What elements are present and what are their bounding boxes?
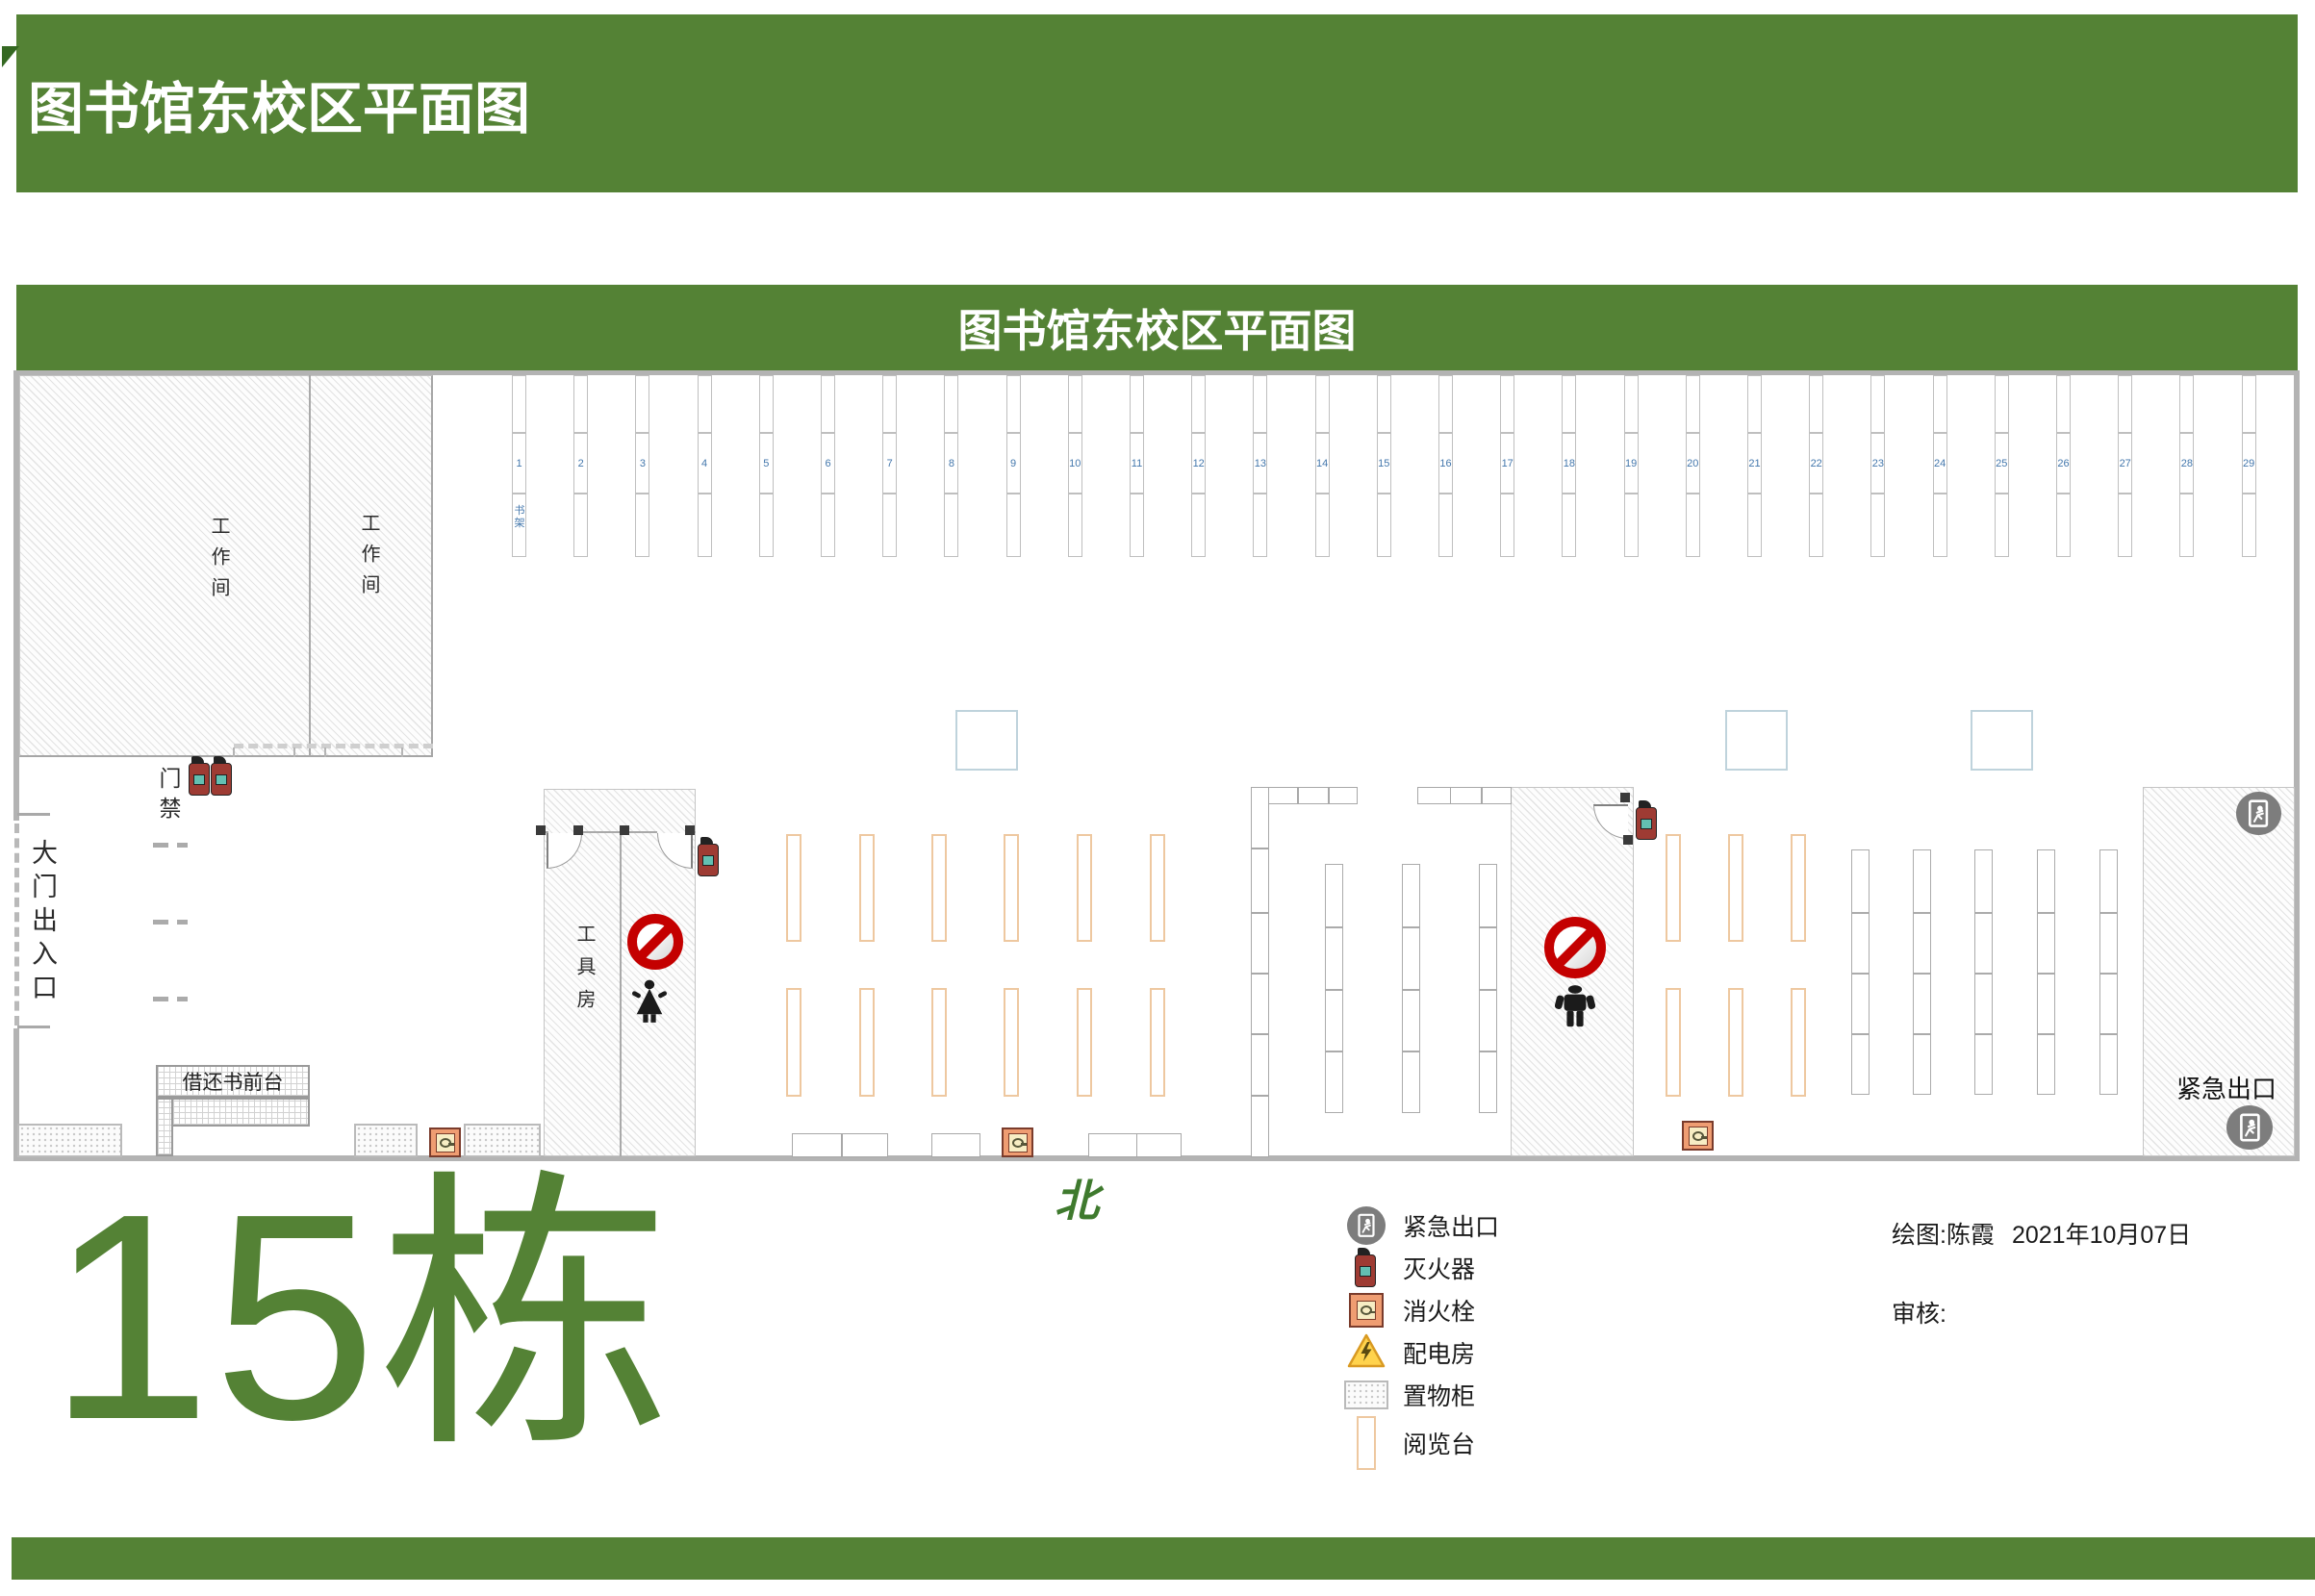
shelf-number: 20 [1687, 458, 1699, 470]
shelf-number-area: 23 [1871, 434, 1884, 494]
gate-dash [177, 843, 188, 848]
storage-cabinet [1417, 787, 1512, 804]
bookshelf: 20 [1686, 375, 1700, 557]
desk-divider [1975, 912, 1992, 914]
bookshelf: 16 [1438, 375, 1453, 557]
shelf-number-area: 12 [1192, 434, 1205, 494]
storage-cabinet [1265, 787, 1358, 804]
locker-divider [1252, 1033, 1268, 1035]
north-indicator: 北 [1055, 1166, 1099, 1229]
bookshelf: 26 [2056, 375, 2071, 557]
borrow-desk-label: 借还书前台 [183, 1067, 284, 1096]
page: 图书馆东校区平面图 图书馆东校区平面图 工作间 工作间 大门出入口 门禁 工具房… [0, 0, 2315, 1596]
reading-desk [1791, 834, 1806, 942]
segmented-desk-column [1913, 849, 1931, 1095]
reading-desk [1150, 834, 1165, 942]
extinguisher-label-patch [702, 855, 714, 866]
reading-desk [1004, 834, 1019, 942]
shelf-number-area: 8 [945, 434, 957, 494]
reading-desk [859, 834, 875, 942]
legend: 紧急出口灭火器消火栓配电房置物柜阅览台 [1341, 1204, 1499, 1470]
no-entry-slash [638, 925, 673, 959]
shelf-number-area: 28 [2180, 434, 2193, 494]
bookshelf: 24 [1933, 375, 1947, 557]
shelf-number: 10 [1069, 458, 1081, 470]
storage-cabinet [792, 1133, 888, 1157]
hydrant-inner [436, 1133, 455, 1153]
desk-divider [1403, 1051, 1419, 1052]
shelf-number: 2 [574, 458, 587, 470]
borrow-desk-column [156, 1098, 173, 1156]
shelf-number: 28 [2180, 458, 2193, 470]
plan-title-banner: 图书馆东校区平面图 [16, 285, 2298, 370]
reading-desk [1666, 834, 1681, 942]
bottom-green-bar [12, 1537, 2315, 1580]
desk-divider [1914, 1033, 1930, 1035]
bookshelf: 17 [1500, 375, 1514, 557]
locker-divider [1252, 912, 1268, 914]
shelf-number-area: 13 [1254, 434, 1266, 494]
desk-divider [1480, 1051, 1496, 1052]
shelf-number-area: 17 [1501, 434, 1514, 494]
shelf-number: 19 [1625, 458, 1638, 470]
locker-divider [1252, 848, 1268, 849]
shelf-number-area: 2 [574, 434, 587, 494]
door-hinge [1620, 793, 1630, 802]
shelf-number: 17 [1501, 458, 1514, 470]
legend-icon-cell [1341, 1333, 1391, 1373]
reading-desk [1728, 988, 1743, 1097]
bookshelf: 13 [1253, 375, 1267, 557]
bookshelf: 28 [2179, 375, 2194, 557]
tool-room-divider-wall [620, 833, 622, 1156]
shelf-number-area: 5 [760, 434, 773, 494]
credits: 绘图:陈霞 2021年10月07日 审核: [1892, 1216, 2191, 1330]
bookshelf: 11 [1130, 375, 1144, 557]
reading-desk [1791, 988, 1806, 1097]
legend-label: 配电房 [1403, 1335, 1475, 1370]
fire-hydrant-icon [1349, 1293, 1384, 1328]
workroom-2-label: 工作间 [355, 513, 383, 605]
legend-item: 配电房 [1341, 1331, 1499, 1374]
legend-icon-cell [1341, 1206, 1391, 1245]
emergency-exit-icon [1347, 1206, 1386, 1245]
cabinet-divider [841, 1134, 843, 1156]
bookshelf: 2 [573, 375, 588, 557]
legend-icon-cell [1341, 1416, 1391, 1470]
legend-label: 置物柜 [1403, 1378, 1475, 1412]
female-restroom-icon [631, 979, 668, 1028]
desk-divider [1326, 1051, 1342, 1052]
door-hinge [620, 825, 629, 835]
legend-item: 紧急出口 [1341, 1204, 1499, 1247]
shelf-number-area: 6 [822, 434, 834, 494]
review-label: 审核: [1892, 1295, 2191, 1330]
bookshelf: 6 [821, 375, 835, 557]
entrance-label: 大门出入口 [24, 839, 62, 1007]
bookshelf: 22 [1809, 375, 1823, 557]
storage-cabinet [1088, 1133, 1182, 1157]
desk-divider [1852, 1033, 1869, 1035]
shelf-number-area: 19 [1625, 434, 1638, 494]
desk-divider [2038, 1033, 2054, 1035]
wall-tick [401, 747, 403, 757]
drawn-date: 2021年10月07日 [2012, 1216, 2191, 1251]
reading-desk [931, 834, 947, 942]
shelf-number-area: 10 [1069, 434, 1081, 494]
shelf-number: 22 [1810, 458, 1822, 470]
reading-desk [786, 834, 801, 942]
bookshelf: 18 [1562, 375, 1576, 557]
shelf-number: 15 [1378, 458, 1390, 470]
fire-extinguisher-icon [698, 837, 721, 877]
segmented-desk-column [1851, 849, 1870, 1095]
entrance-stub-bottom [17, 1026, 50, 1028]
desk-divider [1480, 926, 1496, 928]
shelf-number: 26 [2057, 458, 2070, 470]
fire-hydrant-icon [1002, 1127, 1033, 1157]
reading-desk-icon [1357, 1416, 1376, 1470]
bookshelf: 19 [1624, 375, 1639, 557]
locker-divider [1252, 1095, 1268, 1097]
shelf-number: 6 [822, 458, 834, 470]
fire-extinguisher-icon [211, 756, 234, 797]
hydrant-hose-coil [1012, 1138, 1024, 1148]
shelf-number-area: 15 [1378, 434, 1390, 494]
shelf-number-area: 4 [699, 434, 711, 494]
top-banner: 图书馆东校区平面图 [16, 14, 2298, 192]
access-control-label: 门禁 [152, 767, 185, 826]
gate-dash [153, 997, 168, 1001]
shelf-number: 24 [1934, 458, 1946, 470]
borrow-desk-top: 借还书前台 [156, 1065, 310, 1098]
power-room-icon [1347, 1333, 1386, 1373]
legend-item: 置物柜 [1341, 1374, 1499, 1416]
emergency-exit-icon [2236, 792, 2281, 835]
extinguisher-label-patch [193, 774, 205, 785]
shelf-number: 4 [699, 458, 711, 470]
desk-divider [1852, 912, 1869, 914]
shelf-number: 14 [1316, 458, 1329, 470]
bookshelf: 8 [944, 375, 958, 557]
corner-flag-decoration [2, 46, 19, 67]
cabinet-divider [1297, 788, 1299, 803]
desk-divider [1480, 989, 1496, 991]
legend-item: 消火栓 [1341, 1289, 1499, 1331]
shelf-number-area: 16 [1439, 434, 1452, 494]
no-entry-slash [1556, 928, 1594, 967]
hydrant-inner [1008, 1133, 1028, 1153]
reading-desk [1077, 988, 1092, 1097]
bookshelf: 7 [882, 375, 897, 557]
borrow-desk-bottom [171, 1098, 310, 1127]
shelf-number: 11 [1131, 458, 1143, 470]
drawn-by-label: 绘图:陈霞 [1892, 1216, 1995, 1251]
shelf-label: 书架 [514, 505, 525, 529]
shelf-number-area: 14 [1316, 434, 1329, 494]
cabinet-divider [1328, 788, 1330, 803]
shelf-number: 9 [1007, 458, 1020, 470]
column-marker-square [1725, 710, 1788, 771]
desk-divider [2038, 912, 2054, 914]
shelf-number-area: 18 [1563, 434, 1575, 494]
desk-divider [1326, 926, 1342, 928]
fire-hydrant-icon [1682, 1121, 1714, 1151]
reading-desk [1728, 834, 1743, 942]
shelf-number-area: 24 [1934, 434, 1946, 494]
fire-hydrant-icon [429, 1127, 461, 1157]
shelf-number: 8 [945, 458, 957, 470]
shelf-number: 1 [513, 458, 525, 470]
shelf-number: 27 [2119, 458, 2131, 470]
column-marker-square [1971, 710, 2033, 771]
shelf-number-area: 11 [1131, 434, 1143, 494]
tool-room-label: 工具房 [571, 924, 598, 1022]
shelf-number: 21 [1748, 458, 1761, 470]
extinguisher-label-patch [1641, 819, 1652, 829]
desk-divider [2100, 973, 2117, 975]
desk-divider [1852, 973, 1869, 975]
cabinet-divider [1136, 1134, 1138, 1156]
hydrant-hose-coil [1692, 1131, 1704, 1141]
shelf-number: 25 [1996, 458, 2008, 470]
entrance-door-dashed-line [14, 823, 19, 1026]
bookshelf: 1书架 [512, 375, 526, 557]
door-hinge [1623, 835, 1633, 845]
segmented-desk-column [2037, 849, 2055, 1095]
entrance-stub-top [17, 813, 50, 816]
emergency-exit-icon [2226, 1105, 2273, 1150]
shelf-number: 3 [636, 458, 649, 470]
shelf-number-area: 21 [1748, 434, 1761, 494]
credits-drawn-row: 绘图:陈霞 2021年10月07日 [1892, 1216, 2191, 1251]
legend-icon-cell [1341, 1293, 1391, 1328]
storage-cabinet-dotted [464, 1124, 541, 1157]
bookshelf: 5 [759, 375, 774, 557]
desk-divider [2038, 973, 2054, 975]
locker-divider [1252, 973, 1268, 975]
shelf-number: 18 [1563, 458, 1575, 470]
legend-label: 消火栓 [1403, 1293, 1475, 1328]
bookshelf: 10 [1068, 375, 1082, 557]
segmented-desk-column [1479, 864, 1497, 1113]
shelf-number-area: 25 [1996, 434, 2008, 494]
desk-divider [1326, 989, 1342, 991]
shelf-number: 7 [883, 458, 896, 470]
bookshelf: 15 [1377, 375, 1391, 557]
reading-desk [786, 988, 801, 1097]
gate-dash [153, 843, 168, 848]
fire-extinguisher-icon [1636, 800, 1659, 841]
building-number-label: 15栋 [48, 1170, 674, 1463]
legend-item: 灭火器 [1341, 1247, 1499, 1289]
wall-locker-column [1251, 787, 1269, 1157]
fire-hydrant-icon [1349, 1293, 1384, 1328]
bookshelf: 29 [2242, 375, 2256, 557]
desk-divider [1403, 926, 1419, 928]
desk-divider [2100, 1033, 2117, 1035]
bookshelf: 21 [1747, 375, 1762, 557]
desk-divider [1914, 973, 1930, 975]
segmented-desk-column [1325, 864, 1343, 1113]
shelf-number-area: 3 [636, 434, 649, 494]
wall-tick [324, 747, 326, 757]
reading-desk [931, 988, 947, 1097]
hydrant-inner [1689, 1127, 1708, 1146]
storage-cabinet-dotted [354, 1124, 418, 1157]
shelf-number-area: 29 [2243, 434, 2255, 494]
bookshelf: 23 [1870, 375, 1885, 557]
shelf-number-area: 7 [883, 434, 896, 494]
door-hinge [685, 825, 695, 835]
no-entry-sign [627, 914, 683, 970]
top-banner-title: 图书馆东校区平面图 [28, 63, 530, 144]
bookshelf: 4 [698, 375, 712, 557]
hydrant-hose-coil [1361, 1305, 1372, 1315]
bookshelf: 14 [1315, 375, 1330, 557]
shelf-number: 16 [1439, 458, 1452, 470]
legend-label: 紧急出口 [1403, 1208, 1499, 1243]
plan-banner-title: 图书馆东校区平面图 [958, 296, 1357, 360]
emergency-exit-label: 紧急出口 [2176, 1070, 2277, 1105]
reading-desk [1077, 834, 1092, 942]
bookshelf: 12 [1191, 375, 1206, 557]
door-hinge [536, 825, 546, 835]
shelf-number: 23 [1871, 458, 1884, 470]
legend-icon-cell [1341, 1381, 1391, 1409]
shelf-number-area: 9 [1007, 434, 1020, 494]
shelf-number-area: 26 [2057, 434, 2070, 494]
shelf-number-area: 20 [1687, 434, 1699, 494]
gate-dash [177, 920, 188, 925]
extinguisher-label-patch [216, 774, 227, 785]
fire-extinguisher-icon [1355, 1248, 1378, 1288]
desk-divider [1914, 912, 1930, 914]
reading-desk [1666, 988, 1681, 1097]
fire-extinguisher-icon [189, 756, 212, 797]
shelf-number: 12 [1192, 458, 1205, 470]
workroom-1-label: 工作间 [205, 516, 233, 608]
wall-tick [293, 747, 295, 757]
legend-icon-cell [1341, 1248, 1391, 1288]
bookshelf: 25 [1995, 375, 2009, 557]
legend-label: 灭火器 [1403, 1251, 1475, 1285]
gate-dash [153, 920, 168, 925]
segmented-desk-column [1974, 849, 1993, 1095]
desk-divider [1403, 989, 1419, 991]
reading-desk [1004, 988, 1019, 1097]
shelf-number-area: 22 [1810, 434, 1822, 494]
shelf-number-area: 27 [2119, 434, 2131, 494]
legend-item: 阅览台 [1341, 1416, 1499, 1470]
hydrant-hose-coil [440, 1138, 451, 1148]
cabinet-divider [1481, 788, 1483, 803]
bookshelf: 3 [635, 375, 649, 557]
reading-desk [1150, 988, 1165, 1097]
legend-label: 阅览台 [1403, 1426, 1475, 1460]
gate-dash [177, 997, 188, 1001]
workroom-divider-wall [309, 375, 311, 757]
cabinet-icon [1344, 1381, 1388, 1409]
column-marker-square [955, 710, 1018, 771]
no-entry-sign [1544, 917, 1606, 978]
door-hinge [573, 825, 583, 835]
cabinet-divider [1450, 788, 1452, 803]
storage-cabinet-dotted [17, 1124, 122, 1157]
reading-desk [859, 988, 875, 1097]
segmented-desk-column [1402, 864, 1420, 1113]
desk-divider [1975, 1033, 1992, 1035]
bookshelf: 9 [1006, 375, 1021, 557]
shelf-number-area: 1 [513, 434, 525, 494]
desk-divider [1975, 973, 1992, 975]
storage-cabinet [931, 1133, 980, 1157]
shelf-number: 13 [1254, 458, 1266, 470]
segmented-desk-column [2099, 849, 2118, 1095]
shelf-number: 5 [760, 458, 773, 470]
bookshelf: 27 [2118, 375, 2132, 557]
hydrant-inner [1357, 1301, 1376, 1320]
shelf-number: 29 [2243, 458, 2255, 470]
male-restroom-icon [1555, 985, 1595, 1036]
desk-divider [2100, 912, 2117, 914]
